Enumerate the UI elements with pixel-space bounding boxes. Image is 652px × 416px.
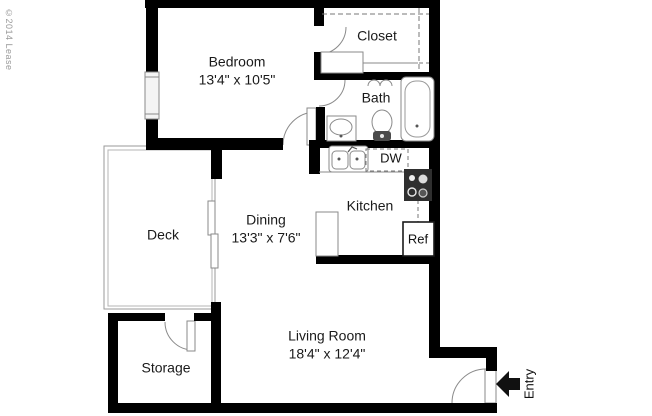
bathtub	[401, 77, 434, 141]
room-label-kitchen: Kitchen	[347, 197, 394, 215]
bedroom-door-leaf	[307, 108, 316, 145]
living-room-name: Living Room	[288, 328, 366, 346]
room-label-dining: Dining 13'3" x 7'6"	[232, 212, 301, 247]
copyright-text: ©2014 Lease	[4, 8, 14, 71]
wall-entry-jamb	[486, 358, 497, 371]
wall-entry-step	[429, 347, 497, 358]
living-room-dimensions: 18'4" x 12'4"	[288, 345, 366, 363]
wall-top	[145, 0, 440, 8]
room-label-deck: Deck	[147, 226, 179, 244]
bedroom-dimensions: 13'4" x 10'5"	[199, 71, 276, 89]
stove	[404, 169, 432, 201]
room-label-living-room: Living Room 18'4" x 12'4"	[288, 328, 366, 363]
room-label-bath: Bath	[362, 89, 391, 107]
dining-dimensions: 13'3" x 7'6"	[232, 229, 301, 247]
bath-fixtures	[327, 77, 434, 141]
storage-name: Storage	[141, 359, 190, 377]
dishwasher-label: DW	[380, 151, 402, 166]
entry-door-arc	[452, 369, 486, 403]
room-label-bedroom: Bedroom 13'4" x 10'5"	[199, 54, 276, 89]
counter-peninsula	[316, 212, 338, 256]
bath-sink	[327, 116, 356, 141]
dining-name: Dining	[232, 212, 301, 230]
wall-bottom	[108, 403, 497, 413]
floor-plan: ©2014 Lease Bedroom 13'4" x 10'5" Closet…	[0, 0, 652, 416]
bath-name: Bath	[362, 89, 391, 107]
wall-kitchen-left-stub	[309, 140, 320, 174]
wall-storage-left	[108, 313, 118, 413]
closet-shelf-unit	[321, 52, 363, 73]
entry-arrow-icon	[496, 371, 520, 397]
sliding-door	[208, 201, 218, 268]
bath-door-arc	[319, 80, 345, 106]
closet-door-arc	[319, 27, 346, 54]
entry-door-leaf	[485, 369, 496, 403]
wall-deck-right	[211, 148, 222, 179]
deck-name: Deck	[147, 226, 179, 244]
kitchen-sink	[329, 146, 368, 172]
entry-label: Entry	[522, 369, 537, 399]
wall-storage-top-right	[194, 313, 221, 321]
room-label-storage: Storage	[141, 359, 190, 377]
room-label-closet: Closet	[357, 27, 397, 45]
toilet	[372, 110, 392, 141]
bedroom-name: Bedroom	[199, 54, 276, 72]
closet-name: Closet	[357, 27, 397, 45]
kitchen-name: Kitchen	[347, 197, 394, 215]
wall-divider-a	[314, 0, 324, 26]
bedroom-window	[145, 72, 159, 119]
refrigerator-label: Ref	[408, 232, 428, 247]
storage-door-leaf	[187, 321, 195, 351]
towel-ring	[368, 80, 392, 86]
